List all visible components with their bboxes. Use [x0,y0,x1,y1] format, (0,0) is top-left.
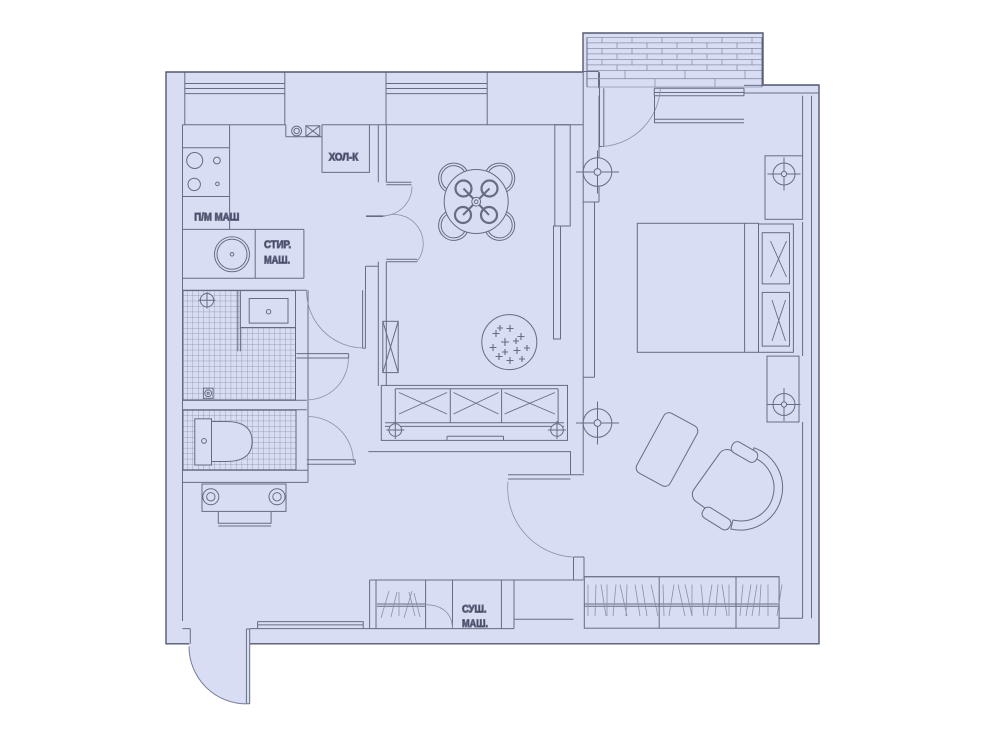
svg-text:МАШ.: МАШ. [264,255,290,267]
svg-text:СТИР.: СТИР. [264,239,291,251]
svg-text:ХОЛ-К: ХОЛ-К [329,151,359,163]
svg-text:П/М МАШ: П/М МАШ [194,212,239,224]
svg-text:МАШ.: МАШ. [462,618,488,630]
svg-text:СУШ.: СУШ. [462,603,487,615]
